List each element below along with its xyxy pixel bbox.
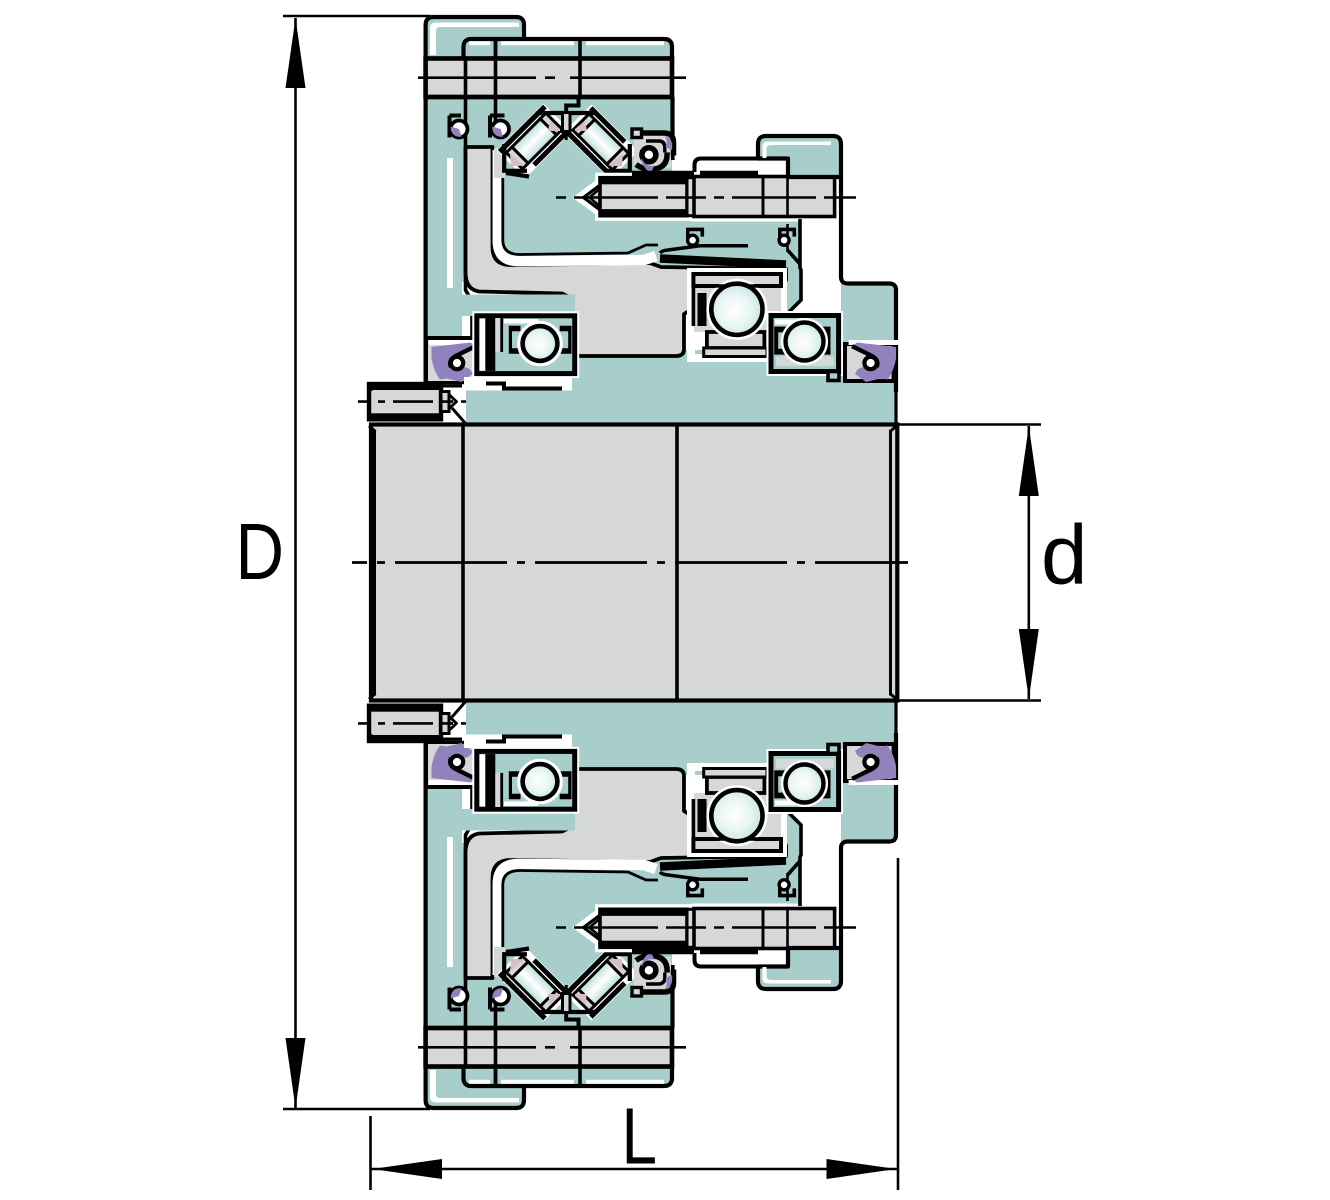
svg-text:d: d (1041, 508, 1088, 602)
svg-text:D: D (236, 507, 285, 596)
svg-text:L: L (622, 1092, 658, 1181)
